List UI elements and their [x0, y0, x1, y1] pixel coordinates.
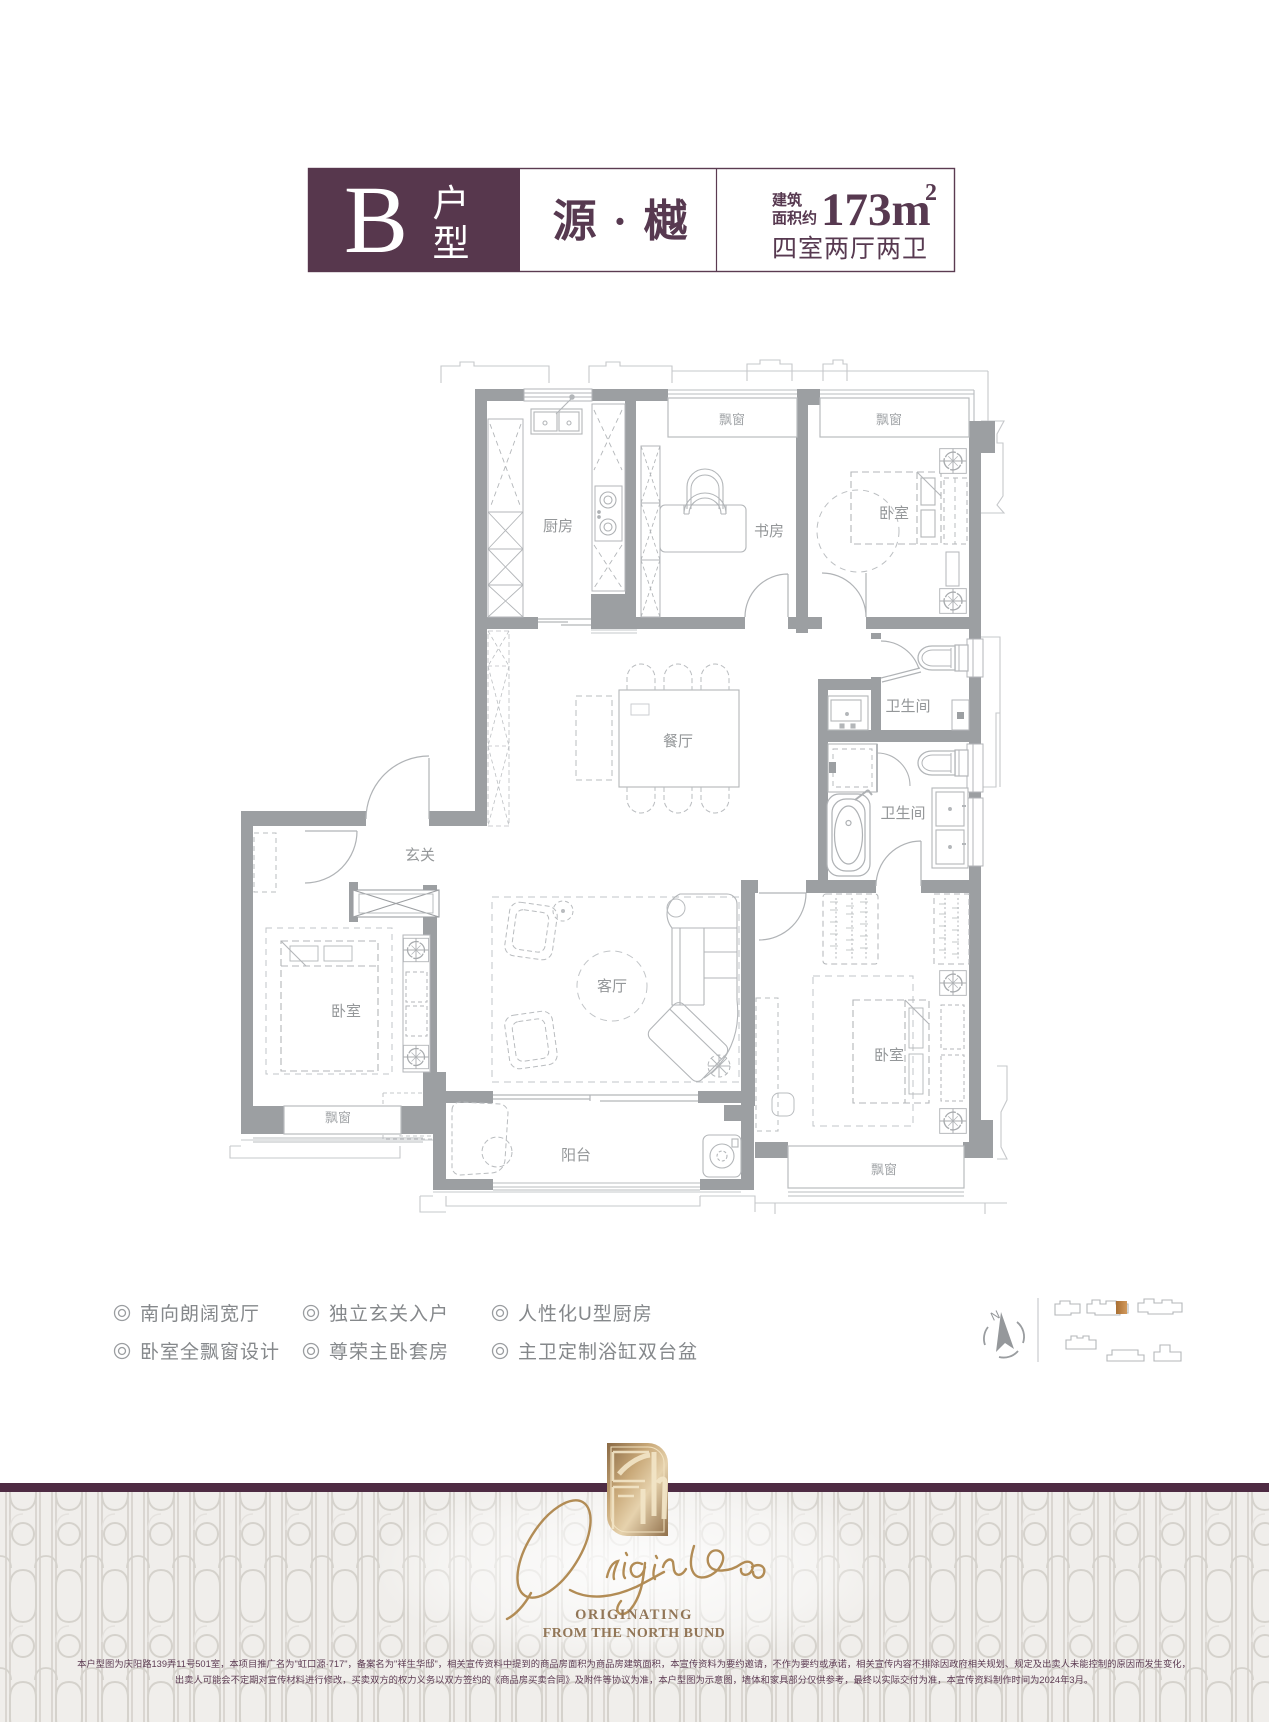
svg-text:独立玄关入户: 独立玄关入户 [329, 1303, 449, 1325]
svg-text:飘窗: 飘窗 [719, 412, 745, 427]
svg-text:尊荣主卧套房: 尊荣主卧套房 [329, 1341, 449, 1363]
svg-text:卧室全飘窗设计: 卧室全飘窗设计 [140, 1341, 280, 1363]
svg-text:人性化U型厨房: 人性化U型厨房 [518, 1303, 653, 1325]
svg-text:建筑: 建筑 [772, 191, 802, 209]
svg-text:本户型图为庆阳路139弄11号501室，本项目推广名为"虹口: 本户型图为庆阳路139弄11号501室，本项目推广名为"虹口源·717"，备案名… [77, 1658, 1191, 1669]
svg-text:源·樾: 源·樾 [553, 197, 704, 246]
svg-text:飘窗: 飘窗 [876, 412, 902, 427]
svg-text:面积约: 面积约 [772, 209, 817, 227]
svg-text:客厅: 客厅 [597, 978, 627, 995]
svg-text:餐厅: 餐厅 [663, 733, 693, 750]
svg-text:ORIGINATING: ORIGINATING [575, 1607, 693, 1623]
svg-text:厨房: 厨房 [543, 518, 573, 535]
svg-text:卧室: 卧室 [331, 1003, 361, 1020]
svg-text:飘窗: 飘窗 [325, 1110, 351, 1125]
svg-text:书房: 书房 [754, 523, 784, 540]
svg-text:2: 2 [925, 180, 937, 206]
svg-text:卫生间: 卫生间 [880, 805, 925, 822]
svg-text:出卖人可能会不定期对宣传材料进行修改，买卖双方的权力义务以双: 出卖人可能会不定期对宣传材料进行修改，买卖双方的权力义务以双方签约的《商品房买卖… [175, 1674, 1093, 1685]
svg-text:卧室: 卧室 [879, 505, 909, 522]
svg-text:卧室: 卧室 [874, 1047, 904, 1064]
svg-text:飘窗: 飘窗 [871, 1162, 897, 1177]
svg-text:阳台: 阳台 [561, 1147, 591, 1164]
svg-text:173m: 173m [821, 184, 931, 236]
svg-text:南向朗阔宽厅: 南向朗阔宽厅 [140, 1303, 260, 1325]
svg-text:型: 型 [433, 224, 470, 265]
svg-text:户: 户 [433, 183, 470, 225]
svg-text:卫生间: 卫生间 [885, 698, 930, 715]
svg-text:B: B [344, 166, 408, 273]
svg-text:FROM THE NORTH BUND: FROM THE NORTH BUND [543, 1626, 726, 1641]
svg-text:四室两厅两卫: 四室两厅两卫 [772, 235, 928, 263]
svg-text:玄关: 玄关 [405, 847, 435, 864]
svg-text:主卫定制浴缸双台盆: 主卫定制浴缸双台盆 [518, 1341, 698, 1363]
